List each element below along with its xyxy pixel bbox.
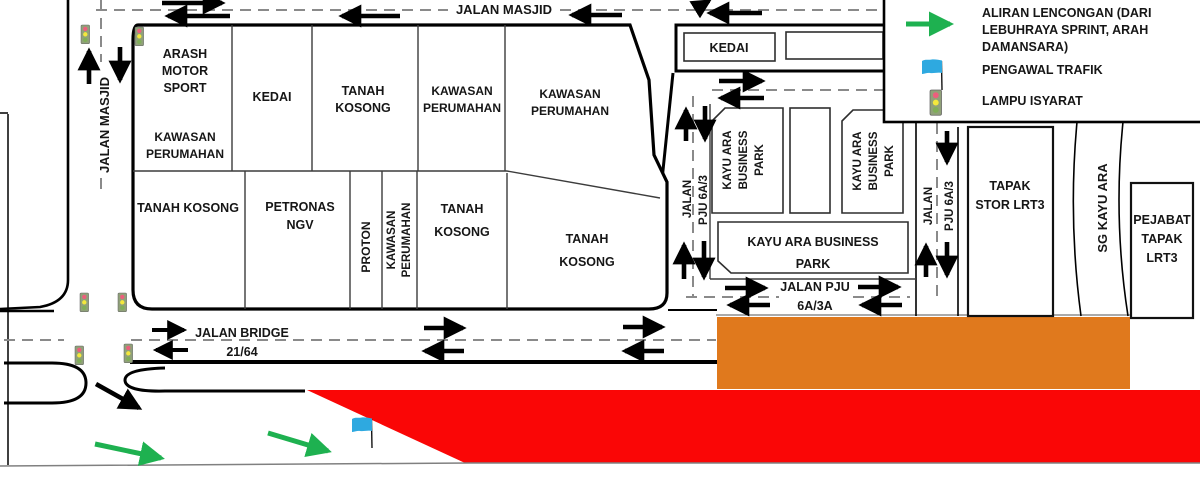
lrt-area: TAPAK STOR LRT3 SG KAYU ARA PEJABAT TAPA…	[968, 122, 1193, 318]
parcel-label: KAWASAN	[539, 87, 600, 101]
diversion-lane-divider	[125, 368, 305, 391]
road-label-jalan-bridge-code: 21/64	[226, 345, 257, 359]
river-bank-left	[1073, 122, 1081, 316]
parcel-label: KOSONG	[335, 101, 391, 115]
road-label-jalan-masjid-top: JALAN MASJID	[456, 2, 552, 17]
traffic-light-icon	[81, 25, 90, 44]
parcel-label: KOSONG	[559, 255, 615, 269]
legend-item-pengawal: PENGAWAL TRAFIK	[982, 63, 1103, 77]
road-label-jalan-pju-right-2: PJU 6A/3	[944, 181, 956, 231]
parcel-label: PETRONAS	[265, 200, 334, 214]
uturn-pocket	[4, 363, 86, 403]
legend-text: ALIRAN LENCONGAN (DARI	[982, 6, 1151, 20]
parcel-proton: PROTON	[359, 221, 373, 272]
parcel-label: KAWASAN	[431, 84, 492, 98]
parcel-label: KAYU ARA BUSINESS	[747, 235, 878, 249]
traffic-marshal-flag-icon	[352, 417, 372, 448]
traffic-light-icon	[135, 27, 144, 46]
flow-arrow-northeast	[696, 1, 709, 9]
parcel-label: BUSINESS	[738, 130, 750, 189]
diversion-lane-outer-edge	[0, 463, 1200, 466]
river-bank-right	[1119, 122, 1128, 316]
parcel-label: LRT3	[1146, 251, 1177, 265]
parcel-label: BUSINESS	[868, 131, 880, 190]
shop-building	[786, 32, 883, 59]
diversion-flow-green-arrow	[95, 444, 161, 458]
parcel-label: TANAH	[566, 232, 609, 246]
left-compound: ARASH MOTOR SPORT KAWASAN PERUMAHAN KEDA…	[133, 25, 667, 309]
legend-text: DAMANSARA)	[982, 40, 1068, 54]
parcel-label: SPORT	[163, 81, 206, 95]
parcel-label: PARK	[754, 143, 766, 175]
parcel-label: PERUMAHAN	[146, 147, 224, 161]
parcel-label: KAWASAN	[386, 211, 398, 270]
legend: ALIRAN LENCONGAN (DARI LEBUHRAYA SPRINT,…	[884, 0, 1200, 122]
parcel-label: STOR LRT3	[975, 198, 1044, 212]
parcel-label: TAPAK	[1141, 232, 1182, 246]
parcel-label: MOTOR	[162, 64, 208, 78]
parcel-label: TANAH	[441, 202, 484, 216]
traffic-light-icon	[124, 344, 133, 363]
traffic-light-icon	[80, 293, 89, 312]
road-label-jalan-pju-right-1: JALAN	[923, 187, 935, 225]
road-edge-far-left	[0, 113, 8, 465]
traffic-light-icon	[75, 346, 84, 365]
road-label-jalan-masjid-left: JALAN MASJID	[97, 77, 112, 173]
map-canvas: ARASH MOTOR SPORT KAWASAN PERUMAHAN KEDA…	[0, 0, 1200, 480]
parcel-kedai-right: KEDAI	[710, 41, 749, 55]
road-label-jalan-pju-bottom-2: 6A/3A	[797, 299, 832, 313]
parcel-label: KOSONG	[434, 225, 490, 239]
legend-text: LEBUHRAYA SPRINT, ARAH	[982, 23, 1148, 37]
legend-item-lampu: LAMPU ISYARAT	[982, 94, 1083, 108]
right-compound: KEDAI KAYU ARA BUSINESS PARK KAYU ARA BU…	[676, 25, 916, 279]
diversion-flow-green-arrow	[268, 433, 328, 451]
road-label-jalan-bridge: JALAN BRIDGE	[195, 326, 289, 340]
river-label-sg-kayu-ara: SG KAYU ARA	[1095, 163, 1110, 253]
parcel-label: PERUMAHAN	[401, 203, 413, 278]
work-zones	[307, 315, 1200, 463]
parcel-tanah-kosong-b: TANAH KOSONG	[137, 201, 239, 215]
parcel-label: KAWASAN	[154, 130, 215, 144]
parcel-label: PERUMAHAN	[531, 104, 609, 118]
unlabeled-building	[790, 108, 830, 213]
road-edge-left	[0, 0, 68, 309]
legend-traffic-light-icon	[930, 90, 942, 115]
parcel-label: TAPAK	[989, 179, 1030, 193]
parcel-label: NGV	[286, 218, 314, 232]
red-closure-zone	[307, 390, 1200, 463]
parcel-kedai-left: KEDAI	[253, 90, 292, 104]
traffic-light-icon	[118, 293, 127, 312]
orange-work-zone	[717, 317, 1130, 389]
parcel-label: KAYU ARA	[852, 131, 864, 190]
traffic-management-plan-map: ARASH MOTOR SPORT KAWASAN PERUMAHAN KEDA…	[0, 0, 1200, 480]
tapak-stor-building	[968, 127, 1053, 316]
road-label-jalan-pju-left-2: PJU 6A/3	[698, 175, 710, 225]
road-label-jalan-pju-bottom-1: JALAN PJU	[780, 280, 849, 294]
parcel-label: PARK	[884, 144, 896, 176]
parcel-label: PERUMAHAN	[423, 101, 501, 115]
road-label-jalan-pju-left-1: JALAN	[682, 180, 694, 218]
parcel-label: PARK	[796, 257, 831, 271]
parcel-label: TANAH	[342, 84, 385, 98]
parcel-label: ARASH	[163, 47, 207, 61]
parcel-label: PEJABAT	[1133, 213, 1191, 227]
parcel-label: KAYU ARA	[722, 130, 734, 189]
road-funnel-edge	[662, 73, 673, 180]
